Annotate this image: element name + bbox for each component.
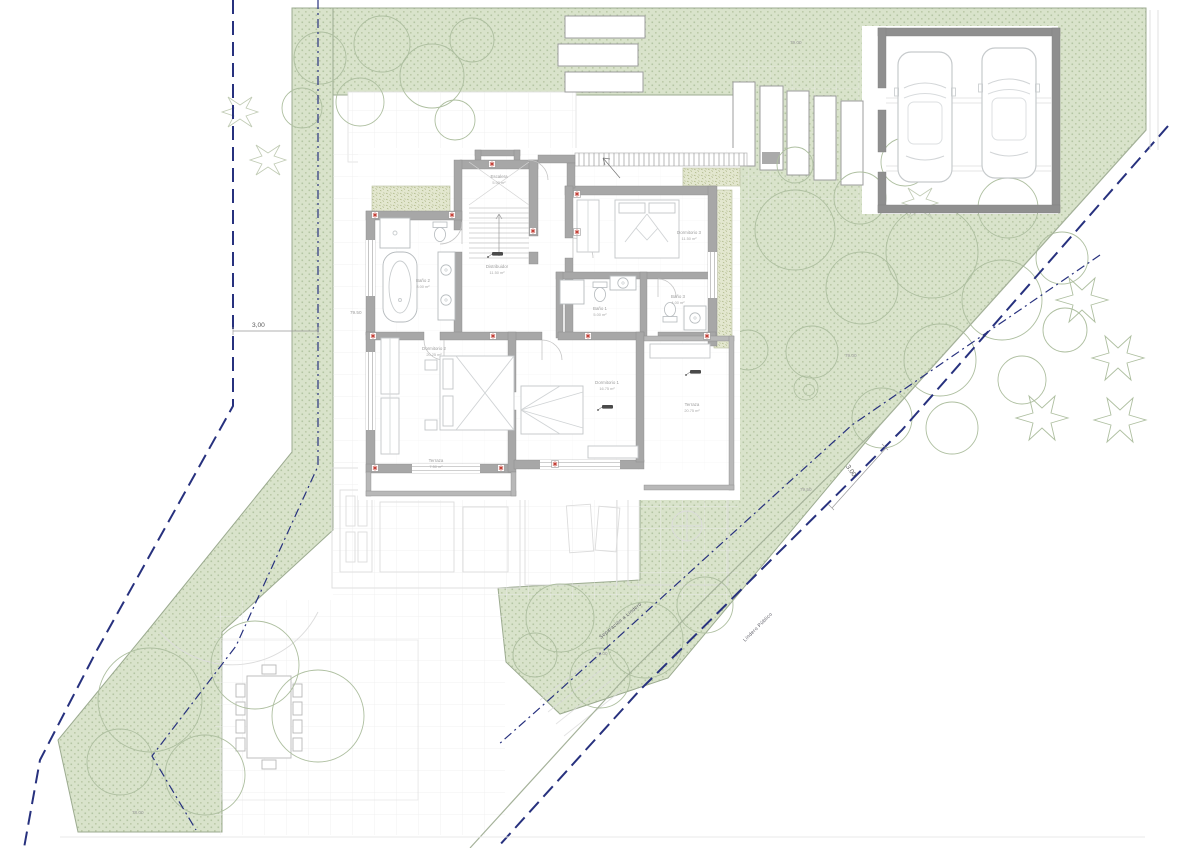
- room-area-dormitorio3: 11.50 m²: [681, 236, 697, 241]
- room-area-dormitorio2: 20.25 m²: [426, 352, 442, 357]
- room-label-dormitorio3: Dormitorio 3: [677, 230, 701, 235]
- room-label-distribuidor: Distribuidor: [486, 264, 509, 269]
- level-diagonal: 79.50: [800, 487, 812, 492]
- room-area-escalera: 5.00 m²: [492, 180, 506, 185]
- car-1: [895, 52, 956, 182]
- room-label-escalera: Escalera: [490, 174, 508, 179]
- level-top: 79.00: [790, 40, 802, 45]
- level-bottom-left: 78.00: [132, 810, 144, 815]
- plan-canvas: Escalera 5.00 m² Baño 2 8.00 m² Distribu…: [0, 0, 1200, 848]
- room-label-dormitorio1: Dormitorio 1: [595, 380, 619, 385]
- level-right: 79.00: [845, 353, 857, 358]
- room-label-bano3: Baño 3: [671, 294, 685, 299]
- room-area-bano1: 5.00 m²: [593, 312, 607, 317]
- room-label-terraza-sur: Terraza: [429, 458, 444, 463]
- room-area-bano3: 4.00 m²: [671, 300, 685, 305]
- level-bottom-center: 78.00: [596, 651, 608, 656]
- site-plan-sheet: Escalera 5.00 m² Baño 2 8.00 m² Distribu…: [0, 0, 1200, 848]
- room-label-terraza-este: Terraza: [685, 402, 700, 407]
- room-label-dormitorio2: Dormitorio 2: [422, 346, 446, 351]
- room-area-terraza-sur: 7.50 m²: [429, 464, 443, 469]
- room-area-terraza-este: 20.75 m²: [684, 408, 700, 413]
- room-label-bano1: Baño 1: [593, 306, 607, 311]
- car-2: [979, 48, 1040, 178]
- room-area-bano2: 8.00 m²: [416, 284, 430, 289]
- room-area-dormitorio1: 16.75 m²: [599, 386, 615, 391]
- room-label-bano2: Baño 2: [416, 278, 430, 283]
- setback-dim-left: 3,00: [252, 322, 265, 329]
- level-left: 79.50: [350, 310, 362, 315]
- room-area-distribuidor: 11.50 m²: [489, 270, 505, 275]
